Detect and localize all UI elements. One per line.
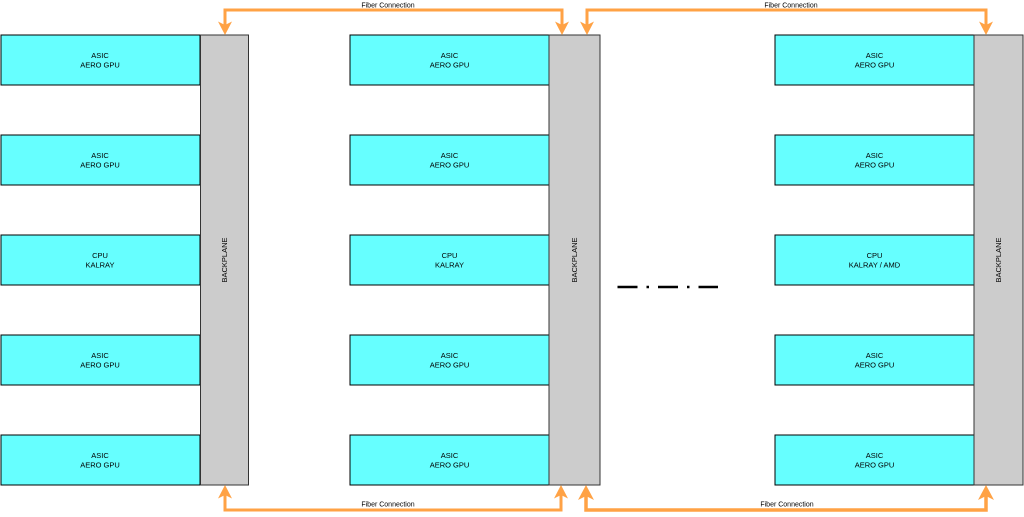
svg-text:AERO GPU: AERO GPU [80,361,120,370]
svg-text:Fiber Connection: Fiber Connection [361,3,414,10]
svg-text:ASIC: ASIC [441,151,459,160]
svg-text:AERO GPU: AERO GPU [80,61,120,70]
svg-text:ASIC: ASIC [866,151,884,160]
svg-text:ASIC: ASIC [441,451,459,460]
svg-text:ASIC: ASIC [441,51,459,60]
svg-text:BACKPLANE: BACKPLANE [570,237,579,282]
svg-text:ASIC: ASIC [91,351,109,360]
svg-text:ASIC: ASIC [91,151,109,160]
svg-text:ASIC: ASIC [866,51,884,60]
svg-text:BACKPLANE: BACKPLANE [994,237,1003,282]
svg-text:AERO GPU: AERO GPU [80,461,120,470]
svg-text:ASIC: ASIC [866,451,884,460]
svg-text:ASIC: ASIC [441,351,459,360]
svg-text:ASIC: ASIC [91,51,109,60]
svg-text:CPU: CPU [442,251,458,260]
svg-text:ASIC: ASIC [91,451,109,460]
svg-text:AERO GPU: AERO GPU [430,461,470,470]
svg-text:BACKPLANE: BACKPLANE [220,237,229,282]
svg-text:ASIC: ASIC [866,351,884,360]
svg-text:AERO GPU: AERO GPU [855,461,895,470]
svg-text:AERO GPU: AERO GPU [430,361,470,370]
svg-text:AERO GPU: AERO GPU [430,61,470,70]
svg-text:KALRAY: KALRAY [85,261,114,270]
svg-text:CPU: CPU [867,251,883,260]
svg-text:KALRAY / AMD: KALRAY / AMD [849,261,901,270]
svg-text:CPU: CPU [92,251,108,260]
svg-text:AERO GPU: AERO GPU [855,361,895,370]
svg-text:AERO GPU: AERO GPU [855,161,895,170]
svg-text:Fiber Connection: Fiber Connection [764,3,817,10]
svg-text:AERO GPU: AERO GPU [430,161,470,170]
svg-text:KALRAY: KALRAY [435,261,464,270]
svg-text:Fiber Connection: Fiber Connection [361,502,414,509]
svg-text:Fiber Connection: Fiber Connection [760,502,813,509]
svg-text:AERO GPU: AERO GPU [80,161,120,170]
svg-text:AERO GPU: AERO GPU [855,61,895,70]
